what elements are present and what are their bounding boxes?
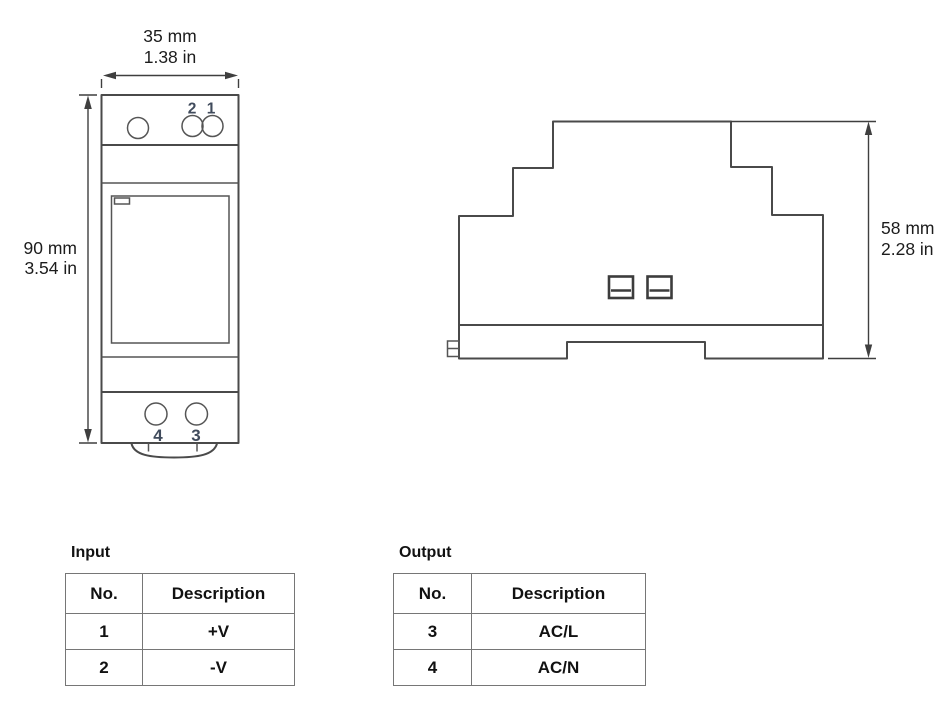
front-width-mm-label: 35 mm	[143, 26, 196, 46]
input-header-no: No.	[66, 574, 143, 614]
input-table-title: Input	[71, 543, 295, 562]
input-table-body: 1 +V 2 -V	[66, 614, 295, 686]
input-pin-1-description: +V	[143, 614, 295, 650]
table-row: 3 AC/L	[394, 614, 646, 650]
output-pin-4-no: 4	[394, 650, 472, 686]
front-view-body-outline	[102, 95, 239, 443]
arrowhead-up	[865, 122, 872, 136]
arrowhead-up	[84, 96, 92, 110]
front-width-dimension: 35 mm 1.38 in	[102, 26, 239, 88]
terminal-4-label: 4	[153, 426, 163, 445]
output-pin-3-no: 3	[394, 614, 472, 650]
output-table-title: Output	[399, 543, 646, 562]
arrowhead-right	[225, 72, 238, 79]
output-pin-3-description: AC/L	[472, 614, 646, 650]
output-table-head: No. Description	[394, 574, 646, 614]
side-view	[448, 122, 824, 359]
side-view-stepped-outline	[459, 122, 823, 359]
mechanical-drawing-page: 2 1 4 3 35 mm 1.38 in 90	[0, 0, 949, 714]
side-height-in-label: 2.28 in	[881, 239, 934, 259]
output-header-description: Description	[472, 574, 646, 614]
front-width-in-label: 1.38 in	[144, 47, 197, 67]
din-rail-clip	[132, 444, 218, 458]
table-header-row: No. Description	[394, 574, 646, 614]
side-height-mm-label: 58 mm	[881, 218, 934, 238]
table-row: 1 +V	[66, 614, 295, 650]
front-view: 2 1 4 3	[102, 95, 239, 458]
table-row: 4 AC/N	[394, 650, 646, 686]
input-table: No. Description 1 +V 2 -V	[65, 573, 295, 686]
input-pin-2-no: 2	[66, 650, 143, 686]
table-row: 2 -V	[66, 650, 295, 686]
front-height-in-label: 3.54 in	[24, 258, 77, 278]
output-header-no: No.	[394, 574, 472, 614]
arrowhead-down	[865, 345, 872, 359]
table-header-row: No. Description	[66, 574, 295, 614]
terminal-1-label: 1	[207, 101, 216, 118]
output-pin-4-description: AC/N	[472, 650, 646, 686]
output-table-body: 3 AC/L 4 AC/N	[394, 614, 646, 686]
arrowhead-left	[103, 72, 116, 79]
arrowhead-down	[84, 429, 92, 443]
front-height-mm-label: 90 mm	[24, 238, 77, 258]
input-pin-2-description: -V	[143, 650, 295, 686]
input-table-head: No. Description	[66, 574, 295, 614]
input-header-description: Description	[143, 574, 295, 614]
terminal-3-label: 3	[191, 426, 200, 445]
output-table: No. Description 3 AC/L 4 AC/N	[393, 573, 646, 686]
input-table-block: Input No. Description 1 +V 2 -V	[65, 543, 295, 686]
terminal-2-label: 2	[188, 101, 197, 118]
front-height-dimension: 90 mm 3.54 in	[24, 95, 97, 443]
output-table-block: Output No. Description 3 AC/L 4 AC/N	[393, 543, 646, 686]
input-pin-1-no: 1	[66, 614, 143, 650]
